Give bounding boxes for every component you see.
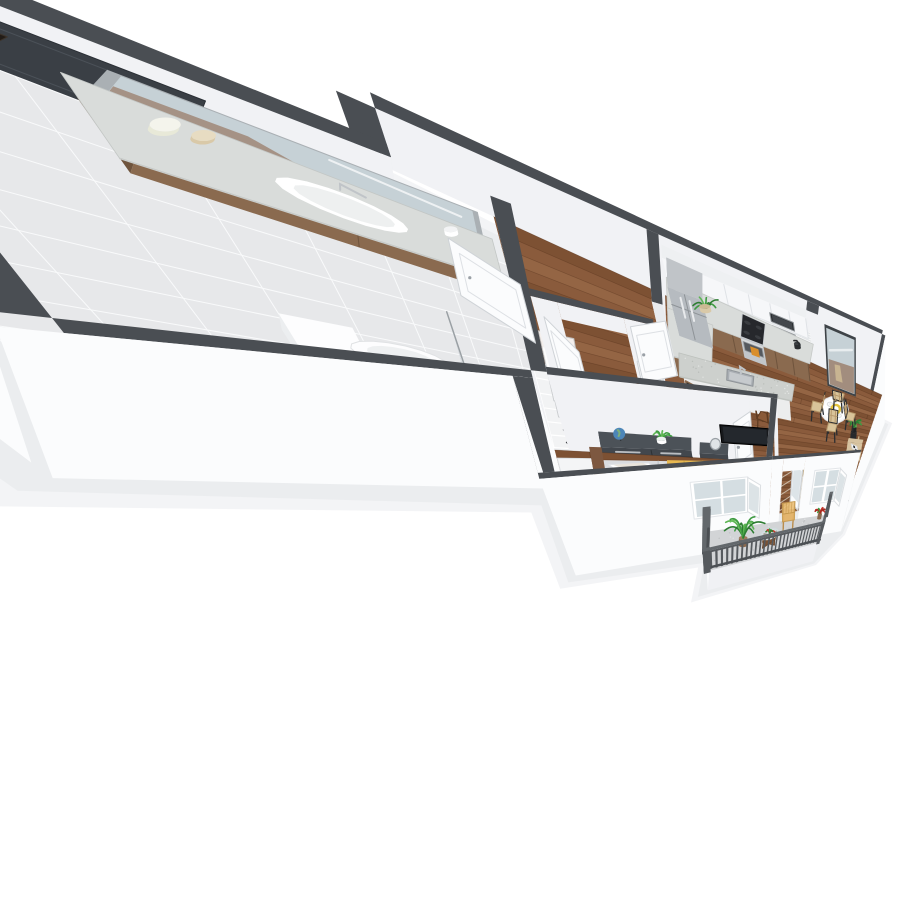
- floorplan-svg: [0, 0, 900, 900]
- wall-tv: [720, 425, 770, 446]
- floorplan-stage: [0, 0, 900, 900]
- bedroom-window: [690, 477, 761, 519]
